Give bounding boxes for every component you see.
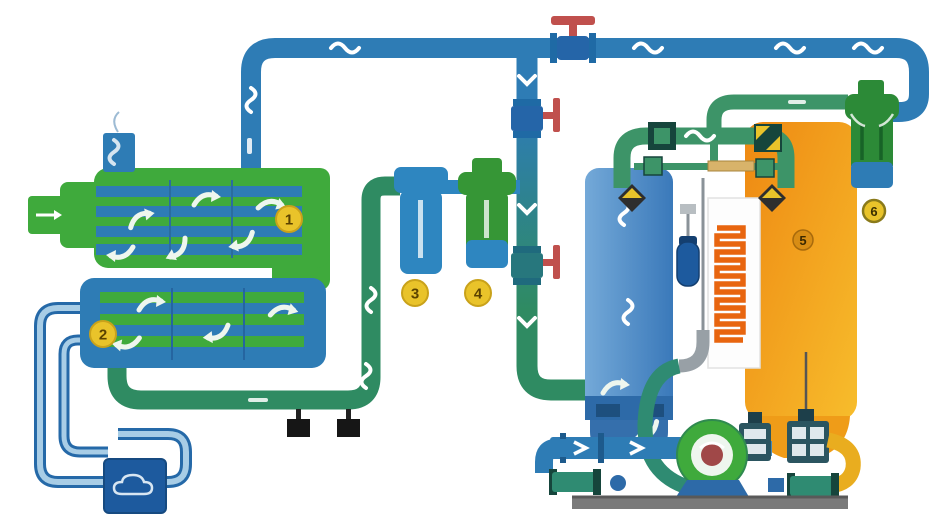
blower (677, 420, 747, 490)
bypass-valve (550, 16, 596, 63)
cooling-unit (104, 459, 166, 513)
marker-1: 1 (276, 206, 302, 232)
heat-exchanger-2 (80, 278, 326, 368)
marker-5-label: 5 (799, 233, 806, 248)
marker-3-label: 3 (411, 286, 419, 303)
regeneration-heater (708, 198, 760, 368)
marker-2-label: 2 (99, 327, 107, 344)
drain-valve-left (552, 472, 598, 492)
marker-2: 2 (90, 321, 116, 347)
motor-box (103, 112, 135, 172)
support-foot (287, 419, 310, 437)
marker-1-label: 1 (285, 212, 293, 229)
marker-4: 4 (465, 280, 491, 306)
valve-handle (551, 16, 595, 25)
isolation-valve-upper (511, 98, 560, 138)
after-filter-6 (845, 80, 899, 188)
flow-mark (248, 398, 268, 402)
marker-3: 3 (402, 280, 428, 306)
dryer-assembly-5 (544, 100, 857, 509)
blower-pedestal (676, 480, 749, 497)
marker-5: 5 (793, 230, 813, 250)
valve-handle (553, 245, 560, 279)
marker-6-label: 6 (870, 204, 877, 219)
condensate-trap (677, 204, 699, 286)
element-line (418, 200, 423, 258)
element-line (484, 200, 489, 238)
valve-handle (553, 98, 560, 132)
marker-4-label: 4 (474, 286, 483, 303)
drain-valve-right (790, 476, 836, 496)
process-flow-diagram: 1 2 3 4 5 6 (0, 0, 945, 526)
marker-6: 6 (863, 200, 885, 222)
heater-coil (717, 228, 743, 340)
purge-duct (679, 330, 703, 366)
dryer-tower-left (585, 168, 673, 458)
isolation-valve-lower (511, 245, 560, 285)
heat-exchanger-1 (28, 112, 330, 290)
filter-4 (458, 158, 520, 268)
support-foot (337, 419, 360, 437)
